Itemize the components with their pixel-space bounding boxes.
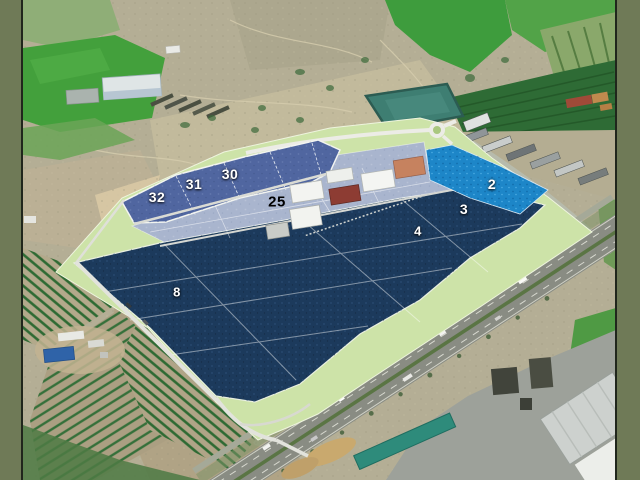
- frame-edge-left: [21, 0, 23, 480]
- pallet-pile-3: [520, 398, 532, 410]
- farmstead-sw: [35, 326, 125, 374]
- frame-edge-right: [615, 0, 617, 480]
- roundabout-center: [433, 126, 441, 134]
- blue-roof-farm-building: [43, 346, 74, 362]
- pallet-pile-2: [529, 357, 554, 389]
- aerial-photo-frame: 234825303132: [0, 0, 640, 480]
- small-farm-building: [166, 45, 181, 53]
- aerial-photo: [0, 0, 640, 480]
- pallet-pile-1: [491, 367, 519, 395]
- small-white-shed: [24, 216, 36, 223]
